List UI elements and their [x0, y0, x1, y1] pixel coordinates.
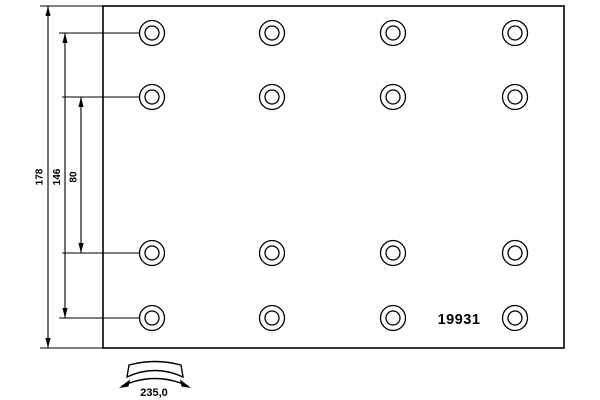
- rivet-hole-outer: [503, 21, 528, 46]
- rivet-hole-inner: [145, 26, 159, 40]
- rivet-hole-outer: [260, 85, 285, 110]
- rivet-hole-outer: [140, 306, 165, 331]
- arrow-down-icon: [45, 338, 50, 348]
- rivet-hole-inner: [386, 26, 400, 40]
- rivet-hole-outer: [381, 21, 406, 46]
- dimension-label-outer-hole-span: 146: [52, 168, 63, 185]
- rivet-hole-outer: [503, 241, 528, 266]
- arc-width-symbol: 235,0: [119, 362, 191, 400]
- rivet-hole-outer: [381, 85, 406, 110]
- rivet-hole-inner: [386, 90, 400, 104]
- rivet-hole-inner: [265, 311, 279, 325]
- rivet-hole-inner: [508, 90, 522, 104]
- rivet-hole-outer: [260, 306, 285, 331]
- rivet-hole-inner: [386, 246, 400, 260]
- arrow-up-icon: [45, 6, 50, 16]
- part-number-label: 19931: [438, 312, 481, 328]
- arc-width-label: 235,0: [140, 387, 168, 399]
- brake-lining-drawing: 178 146 80 235,0 1993: [0, 0, 600, 400]
- rivet-hole-inner: [265, 246, 279, 260]
- lining-plate-outline: [103, 6, 564, 348]
- arrow-up-icon: [78, 97, 83, 107]
- rivet-hole-inner: [145, 90, 159, 104]
- dimension-label-inner-hole-span: 80: [69, 171, 80, 183]
- curved-lining-profile-icon: [127, 362, 183, 378]
- rivet-hole-inner: [265, 90, 279, 104]
- rivet-hole-inner: [508, 311, 522, 325]
- rivet-hole-outer: [140, 85, 165, 110]
- rivet-hole-inner: [508, 26, 522, 40]
- rivet-hole-outer: [260, 21, 285, 46]
- arc-dimension-line: [122, 379, 188, 387]
- rivet-hole-inner: [145, 246, 159, 260]
- rivet-hole-outer: [503, 85, 528, 110]
- rivet-hole-inner: [265, 26, 279, 40]
- rivet-holes-group: [140, 21, 528, 331]
- rivet-hole-outer: [381, 241, 406, 266]
- dimension-inner-hole-span: 80: [62, 97, 139, 253]
- rivet-hole-inner: [145, 311, 159, 325]
- dimension-outer-hole-span: 146: [52, 33, 139, 318]
- arrow-right-icon: [180, 380, 191, 389]
- arrow-down-icon: [62, 308, 67, 318]
- arrow-down-icon: [78, 243, 83, 253]
- arrow-left-icon: [119, 380, 130, 389]
- rivet-hole-outer: [260, 241, 285, 266]
- rivet-hole-outer: [140, 241, 165, 266]
- rivet-hole-inner: [386, 311, 400, 325]
- rivet-hole-outer: [140, 21, 165, 46]
- rivet-hole-outer: [381, 306, 406, 331]
- dimension-label-total-height: 178: [35, 168, 46, 185]
- technical-drawing-canvas: 178 146 80 235,0 1993: [0, 0, 600, 400]
- arrow-up-icon: [62, 33, 67, 43]
- rivet-hole-outer: [503, 306, 528, 331]
- rivet-hole-inner: [508, 246, 522, 260]
